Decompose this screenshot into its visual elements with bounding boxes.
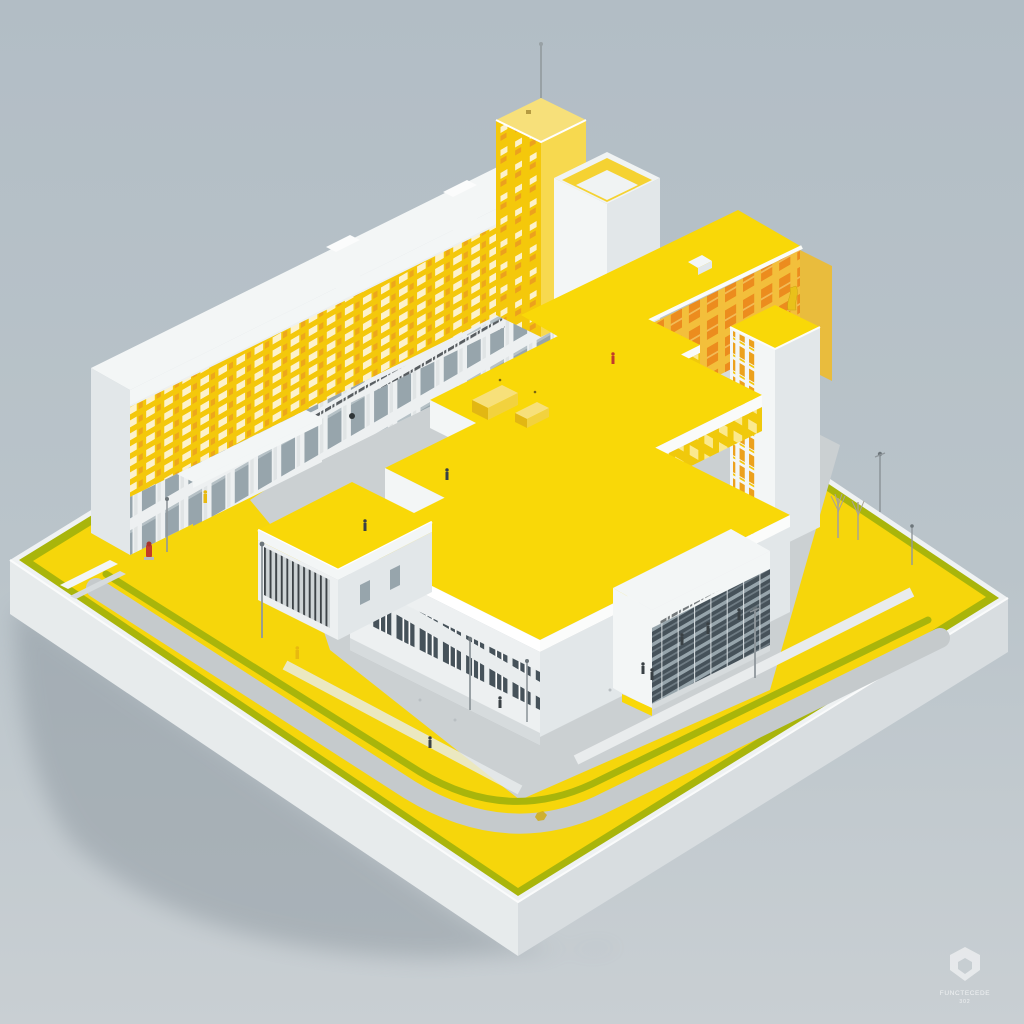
person-head [363,519,366,522]
roof-dot-2 [534,391,537,394]
lamp-head [260,542,265,547]
lamp-head [468,637,472,641]
person-head [445,468,448,471]
hydrant-cap [147,542,152,547]
person [498,696,501,708]
scene-canvas: FUNCTECEDE 302 [0,0,1024,1024]
antenna-tip [539,42,543,46]
person-head [611,352,614,355]
person [611,352,614,364]
slab-end-wall [91,368,130,555]
person-body [364,523,367,531]
plaza-speck [419,699,422,702]
person-body [296,650,300,659]
plaza-speck [454,719,457,722]
lamp-head [165,497,169,501]
person-head [706,622,709,625]
person [641,662,644,674]
hydrant-base [144,557,154,560]
person [680,633,683,645]
isometric-render: FUNCTECEDE 302 [0,0,1024,1024]
person [428,736,431,748]
lamp-head [525,659,529,663]
person-body [499,700,502,708]
person [650,668,653,680]
person-head [680,633,683,636]
person-head [641,662,644,665]
person-head [204,490,208,494]
person-head [498,696,501,699]
hydrant-body [146,545,152,557]
person-head [650,668,653,671]
person [706,622,709,634]
person-body [651,672,654,680]
lamp-head [910,524,914,528]
person-body [446,472,449,480]
roof-dot [499,379,502,382]
brand-name: FUNCTECEDE [940,990,990,997]
person-body [642,666,645,674]
rooftop-unit [526,110,531,114]
yellow-tower-front [496,120,541,337]
rooftop-vent-dot [349,413,355,419]
person-head [296,646,300,650]
person-body [612,356,615,364]
person-body [738,612,741,620]
person-body [204,494,208,503]
person [296,646,300,659]
person-body [707,626,710,634]
person-body [429,740,432,748]
person [445,468,448,480]
person [204,490,208,503]
person-body [681,637,684,645]
person-head [737,608,740,611]
plaza-speck [609,689,612,692]
brand-tagline: 302 [959,999,970,1005]
person [737,608,740,620]
person-head [428,736,431,739]
person [363,519,366,531]
